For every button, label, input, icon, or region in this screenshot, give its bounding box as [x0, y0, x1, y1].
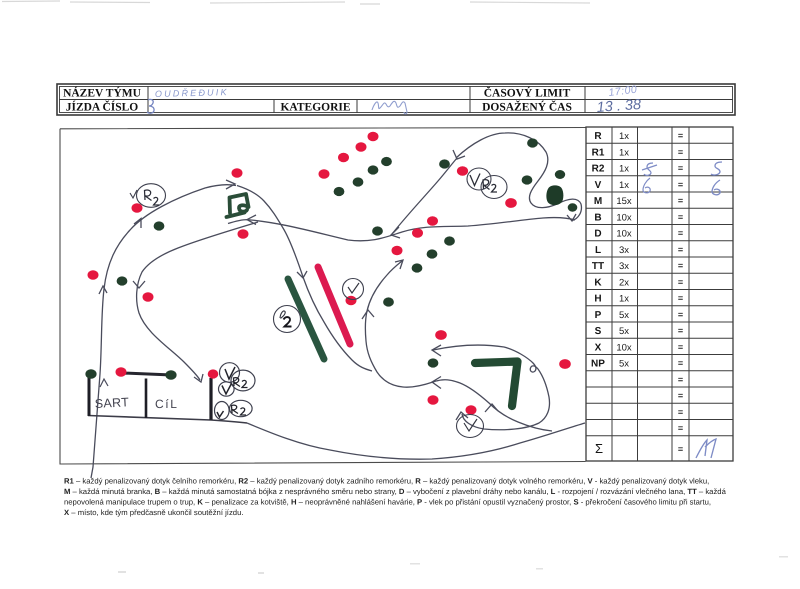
svg-text:5x: 5x [619, 326, 629, 337]
svg-text:DOSAŽENÝ ČAS: DOSAŽENÝ ČAS [482, 101, 572, 114]
svg-text:=: = [678, 423, 683, 433]
svg-text:=: = [678, 179, 683, 189]
svg-text:X – místo, kde tým předčasně u: X – místo, kde tým předčasně ukončil sou… [64, 508, 243, 517]
svg-text:L: L [595, 245, 601, 256]
svg-text:nepovolená manipulace trupem o: nepovolená manipulace trupem o trup, K –… [64, 498, 711, 507]
svg-text:Σ: Σ [595, 441, 603, 456]
svg-text:R2: R2 [592, 164, 605, 175]
svg-text:=: = [678, 444, 683, 454]
svg-text:=: = [678, 196, 683, 206]
svg-text:H: H [594, 294, 601, 305]
svg-text:1x: 1x [619, 131, 629, 142]
svg-text:ČASOVÝ LIMIT: ČASOVÝ LIMIT [484, 87, 571, 100]
svg-text:V: V [595, 180, 602, 191]
svg-text:=: = [678, 261, 683, 271]
svg-text:1x: 1x [619, 147, 629, 158]
svg-text:=: = [678, 391, 683, 401]
svg-text:B: B [594, 212, 601, 223]
svg-text:=: = [678, 293, 683, 303]
svg-text:=: = [678, 374, 683, 384]
svg-text:M – každá minutá branka, B – k: M – každá minutá branka, B – každá minut… [64, 487, 727, 496]
svg-text:=: = [678, 147, 683, 157]
svg-text:M: M [594, 196, 602, 207]
svg-text:3x: 3x [619, 245, 629, 256]
svg-text:2x: 2x [619, 277, 629, 288]
svg-text:D: D [594, 229, 601, 240]
svg-text:5x: 5x [619, 359, 629, 370]
svg-text:1x: 1x [619, 294, 629, 305]
svg-text:SART: SART [94, 395, 129, 411]
svg-text:=: = [678, 326, 683, 336]
svg-text:=: = [678, 163, 683, 173]
svg-text:P: P [595, 310, 602, 321]
svg-text:=: = [678, 212, 683, 222]
svg-text:K: K [594, 277, 602, 288]
svg-text:15x: 15x [616, 196, 632, 207]
svg-text:=: = [678, 407, 683, 417]
svg-text:=: = [678, 244, 683, 254]
svg-text:CíL: CíL [155, 397, 178, 411]
svg-text:TT: TT [592, 261, 604, 272]
svg-text:R1 – každý penalizovaný dotyk: R1 – každý penalizovaný dotyk čelního re… [64, 477, 709, 486]
svg-text:3x: 3x [619, 261, 629, 272]
svg-text:=: = [678, 342, 683, 352]
svg-text:=: = [678, 131, 683, 141]
svg-text:=: = [678, 309, 683, 319]
svg-text:10x: 10x [616, 342, 632, 353]
svg-text:OUDŘEĐUIK: OUDŘEĐUIK [155, 87, 229, 99]
svg-text:R1: R1 [592, 147, 605, 158]
svg-text:R: R [594, 131, 602, 142]
svg-text:13 . 38: 13 . 38 [596, 97, 641, 116]
svg-text:NÁZEV TÝMU: NÁZEV TÝMU [63, 87, 142, 100]
svg-text:NP: NP [591, 359, 605, 370]
svg-text:JÍZDA ČÍSLO: JÍZDA ČÍSLO [66, 101, 139, 114]
svg-text:=: = [678, 228, 683, 238]
svg-text:10x: 10x [616, 229, 632, 240]
svg-text:10x: 10x [616, 212, 632, 223]
svg-text:=: = [678, 277, 683, 287]
svg-text:=: = [678, 358, 683, 368]
svg-text:S: S [595, 326, 602, 337]
svg-text:KATEGORIE: KATEGORIE [280, 102, 350, 114]
svg-text:1x: 1x [619, 164, 629, 175]
svg-text:5x: 5x [619, 310, 629, 321]
svg-text:X: X [595, 342, 602, 353]
svg-text:1x: 1x [619, 180, 629, 191]
